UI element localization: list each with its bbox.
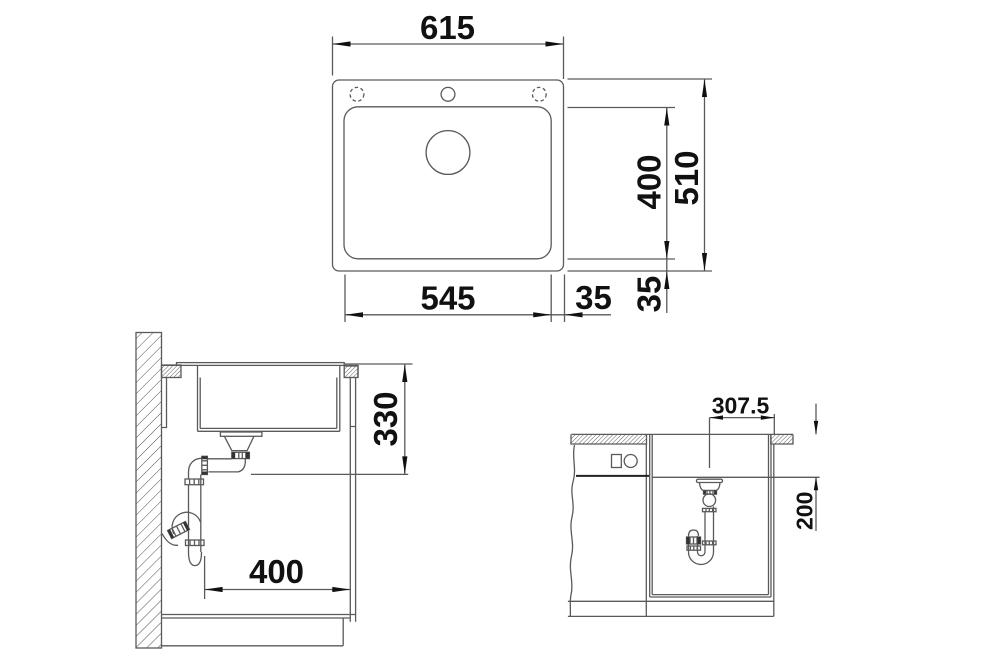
- svg-text:35: 35: [630, 276, 667, 313]
- svg-text:35: 35: [575, 279, 612, 316]
- svg-text:200: 200: [792, 492, 818, 530]
- svg-text:400: 400: [249, 553, 304, 590]
- svg-text:307.5: 307.5: [712, 393, 770, 419]
- svg-text:400: 400: [630, 154, 667, 209]
- svg-text:510: 510: [668, 150, 705, 205]
- svg-text:615: 615: [420, 9, 475, 46]
- svg-text:545: 545: [420, 280, 475, 317]
- svg-text:330: 330: [367, 391, 404, 446]
